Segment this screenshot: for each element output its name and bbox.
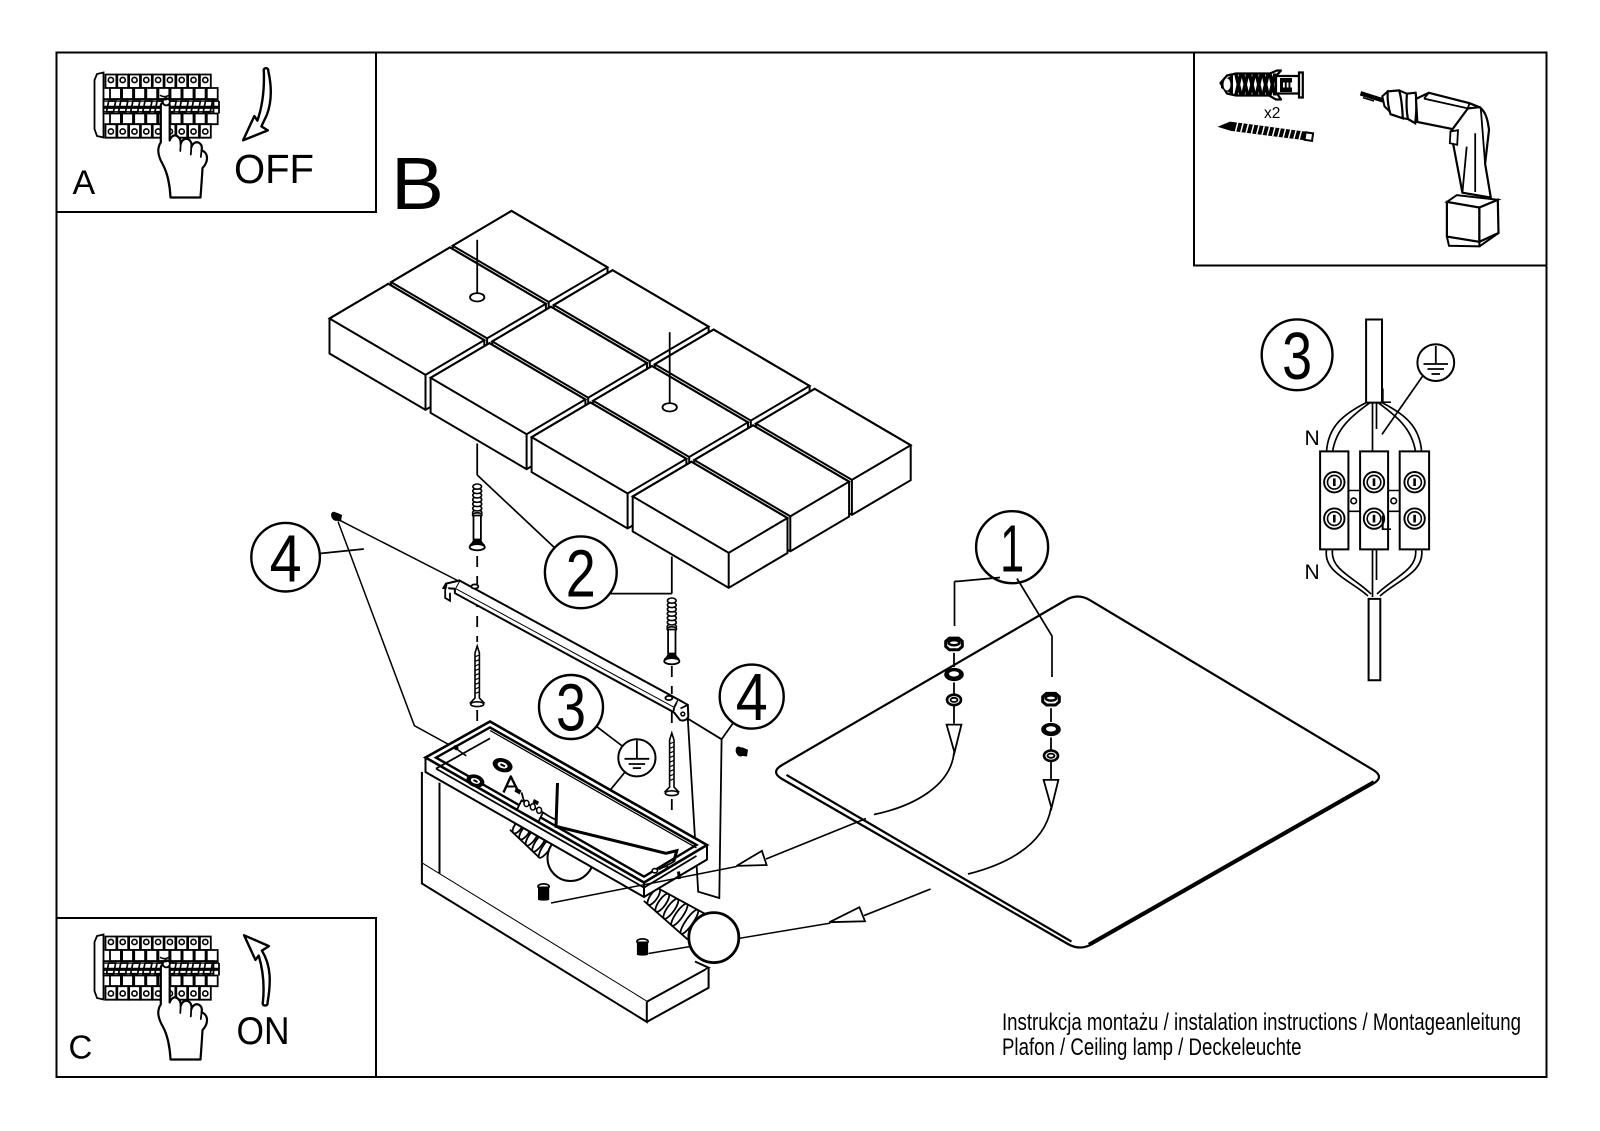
svg-text:1: 1 [1000,512,1024,587]
svg-text:ON: ON [237,1010,290,1053]
svg-text:L: L [1380,512,1392,535]
svg-text:4: 4 [736,660,768,735]
svg-text:N: N [1305,427,1320,450]
svg-text:Instrukcja montażu / instalati: Instrukcja montażu / instalation instruc… [1002,1009,1521,1036]
svg-text:3: 3 [556,671,586,746]
svg-text:Plafon / Ceiling lamp / Deckel: Plafon / Ceiling lamp / Deckeleuchte [1002,1034,1302,1061]
svg-text:2: 2 [566,537,596,612]
svg-text:OFF: OFF [234,146,314,192]
svg-text:C: C [69,1029,93,1066]
svg-text:4: 4 [270,522,302,597]
svg-text:A: A [73,164,96,202]
svg-text:3: 3 [1282,319,1312,394]
svg-text:x2: x2 [1264,105,1280,122]
svg-text:N: N [1305,561,1320,584]
svg-text:B: B [391,142,444,225]
